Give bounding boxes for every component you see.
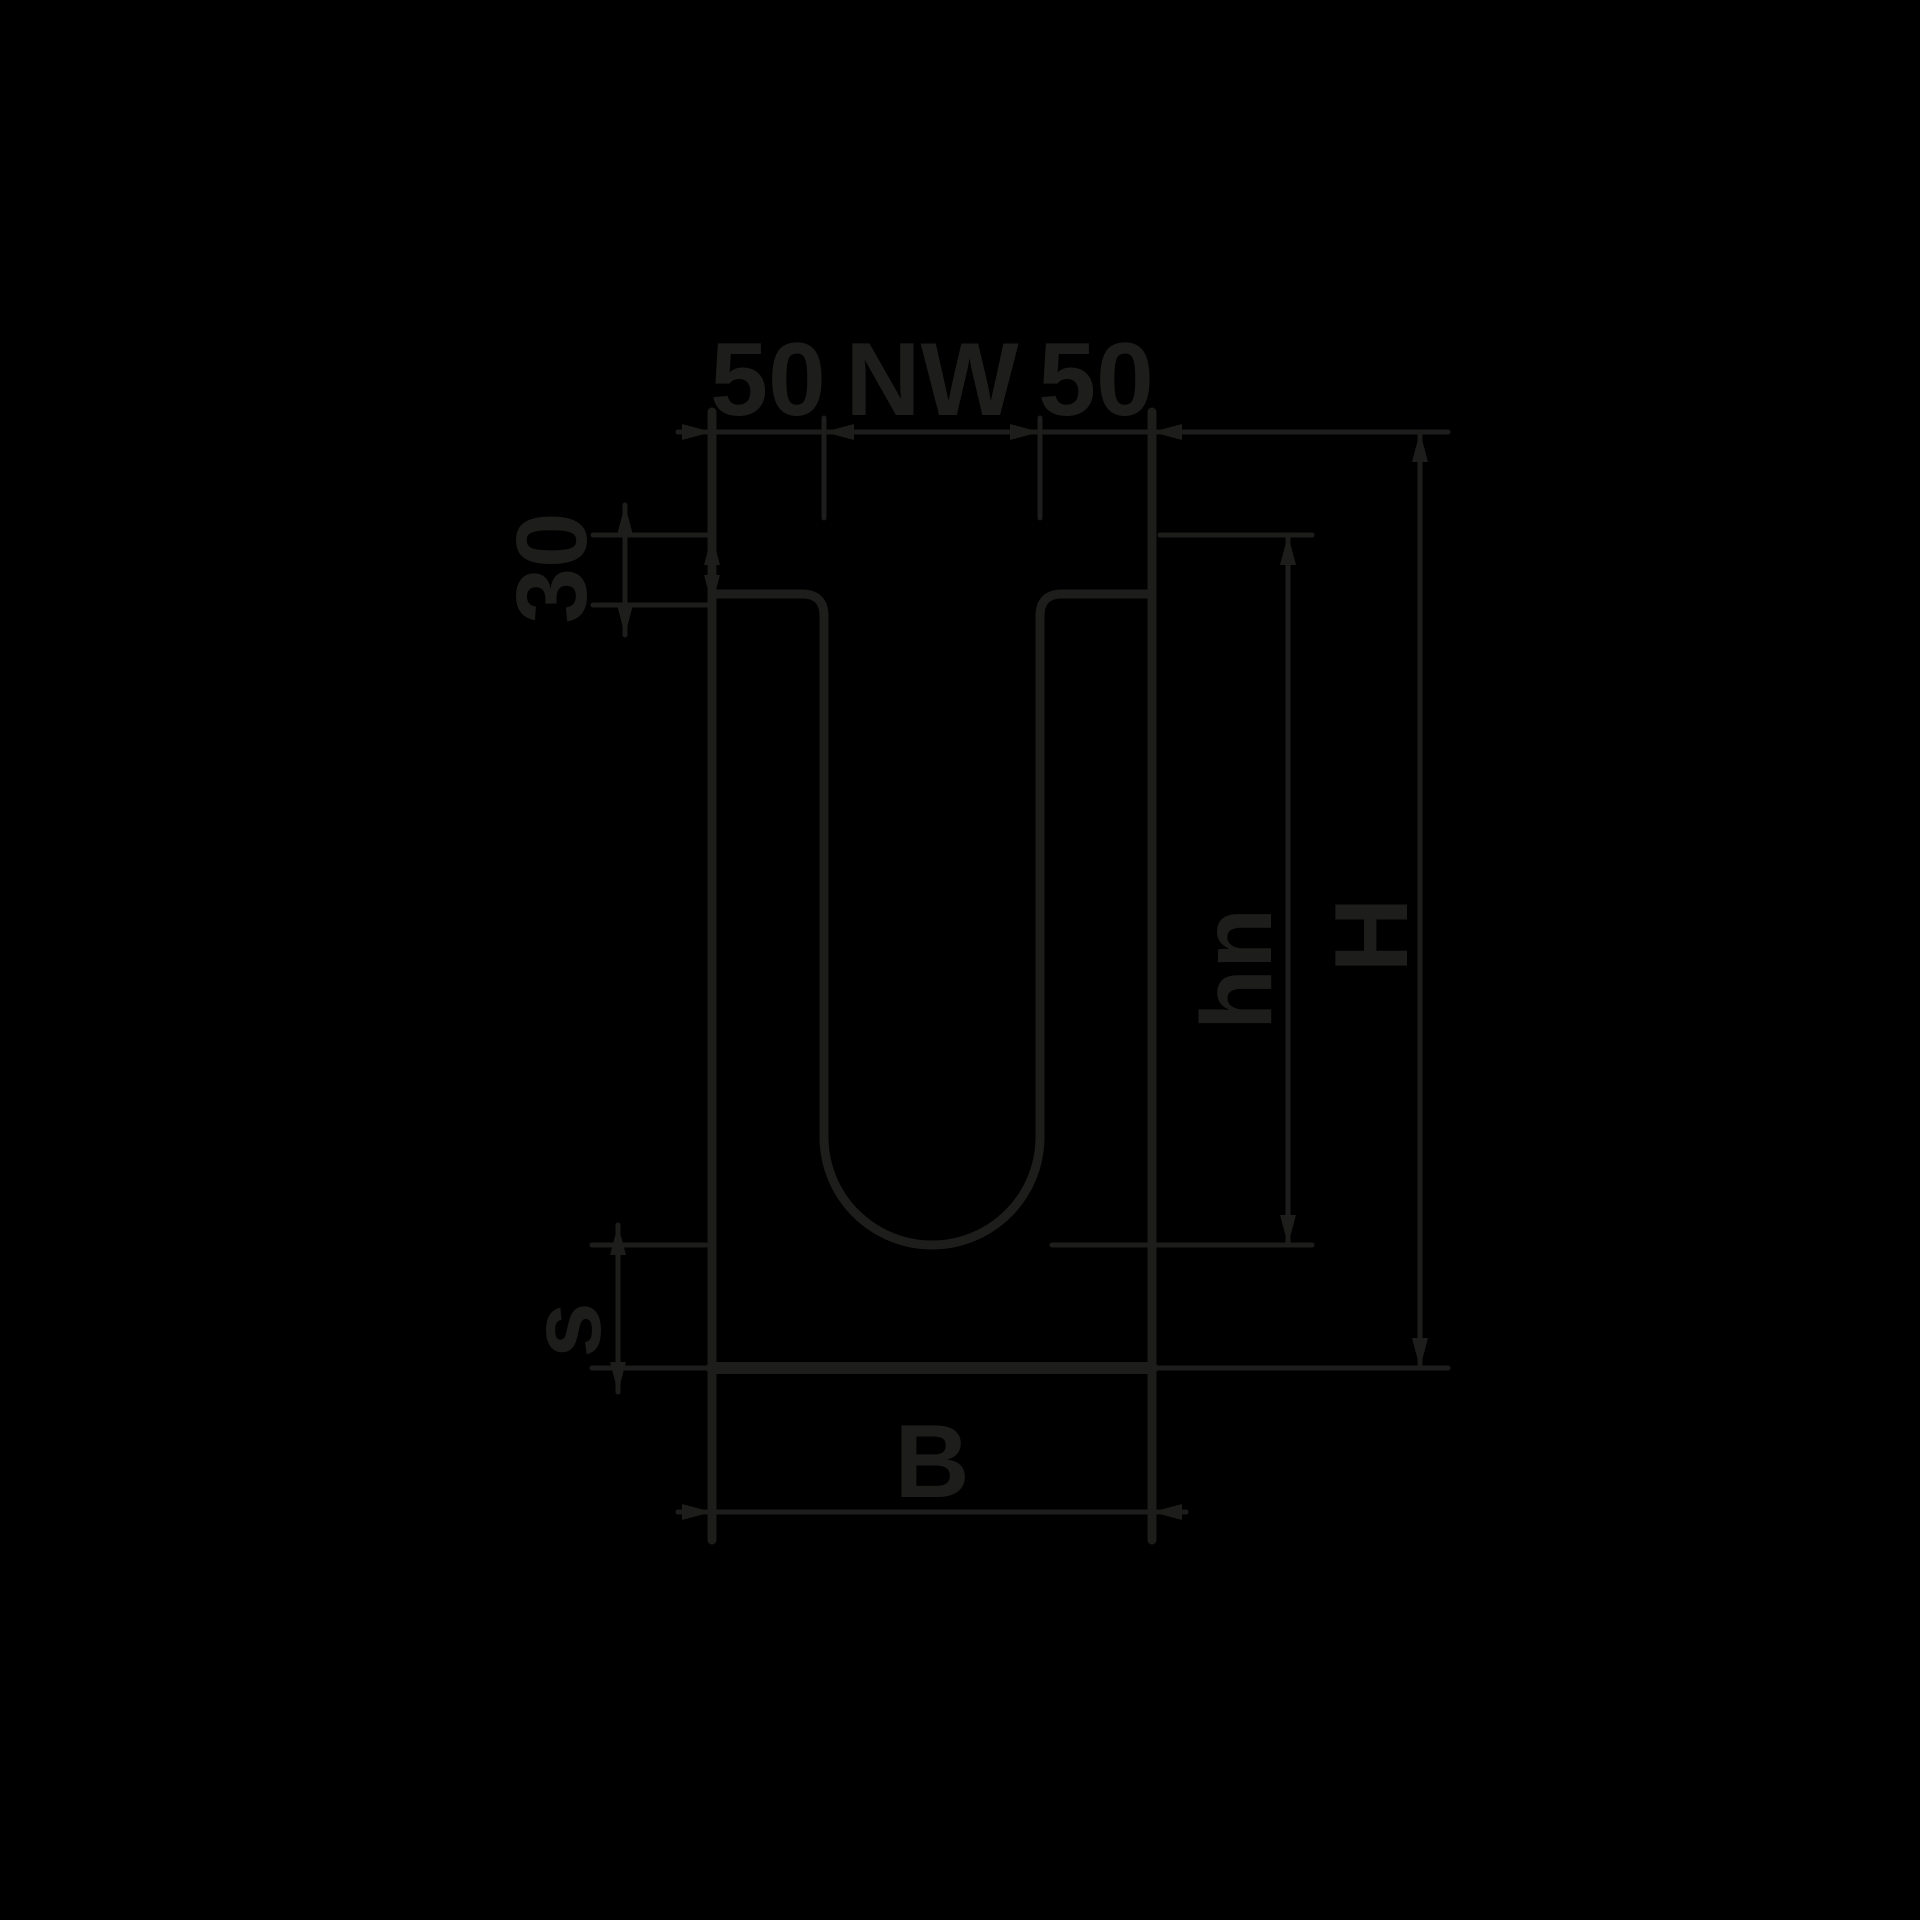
arrowhead xyxy=(704,535,720,565)
arrowhead xyxy=(1412,432,1428,462)
dim-label-inner-depth: hn xyxy=(1181,908,1293,1030)
arrowhead xyxy=(617,505,633,535)
channel-cross-section-drawing: 50 NW 50 30 hn H s xyxy=(0,0,1920,1920)
arrowhead xyxy=(610,1362,626,1392)
inner-channel-u-profile xyxy=(712,594,1152,1245)
drawing-canvas: 50 NW 50 30 hn H s xyxy=(0,0,1920,1920)
arrowhead xyxy=(1280,1215,1296,1245)
arrowhead xyxy=(617,605,633,635)
dim-label-rim-depth: 30 xyxy=(496,512,608,623)
dim-label-wall-right: 50 xyxy=(1038,322,1154,438)
dim-label-overall-height: H xyxy=(1314,897,1430,972)
dim-label-overall-width: B xyxy=(894,1404,969,1520)
dim-label-nominal-width: NW xyxy=(845,322,1019,438)
arrowhead xyxy=(1280,535,1296,565)
dim-label-base-thickness: s xyxy=(510,1302,622,1358)
arrowhead xyxy=(610,1225,626,1255)
dim-label-wall-left: 50 xyxy=(710,322,826,438)
arrowhead xyxy=(1412,1338,1428,1368)
